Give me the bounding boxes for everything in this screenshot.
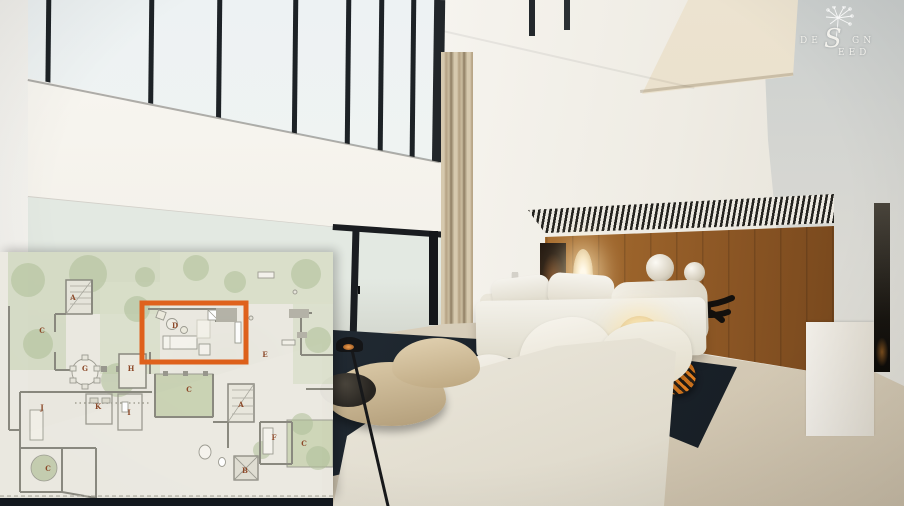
video-frame: ACDEGHCAJKIFCCB DE S GN EED xyxy=(0,0,904,506)
room-label-J: J xyxy=(39,403,44,412)
brand-text: EED xyxy=(838,48,870,58)
room-label-E: E xyxy=(262,350,267,359)
brand-text: GN xyxy=(852,36,875,46)
room-label-C: C xyxy=(45,464,51,473)
room-label-B: B xyxy=(242,466,248,475)
room-label-I: I xyxy=(127,408,130,417)
room-label-G: G xyxy=(82,364,88,373)
room-label-D: D xyxy=(172,321,178,330)
brand-text: DE xyxy=(800,36,822,46)
room-label-F: F xyxy=(272,433,277,442)
room-label-A: A xyxy=(237,400,244,409)
brand-watermark: DE S GN EED xyxy=(792,6,904,70)
room-label-H: H xyxy=(128,364,135,373)
room-label-A: A xyxy=(69,293,76,302)
floor-plan-overlay: ACDEGHCAJKIFCCB xyxy=(0,252,333,498)
room-label-C: C xyxy=(39,326,45,335)
room-label-C: C xyxy=(301,439,307,448)
room-label-C: C xyxy=(186,385,192,394)
room-label-K: K xyxy=(95,402,102,411)
